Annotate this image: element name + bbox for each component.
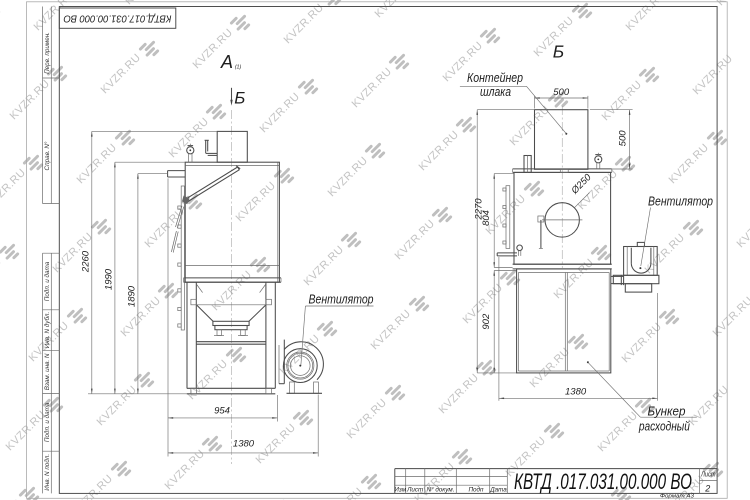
svg-text:902: 902 (481, 313, 492, 330)
svg-text:500: 500 (617, 130, 628, 147)
svg-text:Подп. и дата: Подп. и дата (43, 402, 51, 442)
svg-text:N° докум.: N° докум. (427, 485, 455, 493)
svg-text:Вентилятор: Вентилятор (648, 195, 713, 209)
svg-text:Подп: Подп (468, 485, 484, 493)
svg-text:Б: Б (234, 89, 245, 108)
svg-text:КВТД.017.031.00.000 ВО: КВТД.017.031.00.000 ВО (63, 12, 171, 23)
svg-text:804: 804 (481, 210, 492, 226)
svg-text:1990: 1990 (103, 268, 114, 290)
svg-text:Инв. N дубл.: Инв. N дубл. (43, 312, 51, 348)
svg-text:1380: 1380 (565, 387, 587, 398)
svg-text:Подп. и дата: Подп. и дата (43, 261, 51, 301)
svg-text:А: А (220, 52, 233, 72)
svg-text:расходный: расходный (638, 420, 690, 434)
svg-text:954: 954 (214, 406, 230, 417)
svg-text:1380: 1380 (233, 439, 255, 450)
svg-text:Бункер: Бункер (648, 405, 686, 419)
svg-text:шлака: шлака (480, 85, 511, 99)
svg-text:Инв. N подл.: Инв. N подл. (43, 454, 51, 491)
svg-text:1890: 1890 (126, 285, 137, 307)
svg-text:2260: 2260 (80, 250, 91, 273)
svg-text:500: 500 (553, 87, 570, 98)
svg-text:Формат А3: Формат А3 (660, 493, 695, 499)
svg-text:Лист: Лист (700, 469, 715, 478)
svg-text:Перв. примен.: Перв. примен. (44, 32, 51, 74)
svg-text:Контейнер: Контейнер (467, 71, 523, 85)
svg-text:Дата: Дата (489, 486, 507, 493)
svg-text:Б: Б (553, 42, 564, 62)
svg-text:Вентилятор: Вентилятор (309, 293, 374, 307)
svg-text:(1): (1) (235, 65, 242, 71)
svg-text:Взам. инв. N: Взам. инв. N (44, 353, 51, 390)
svg-text:2: 2 (704, 483, 710, 493)
svg-text:Изм: Изм (394, 486, 406, 493)
svg-text:Справ. N°: Справ. N° (43, 141, 51, 170)
svg-text:КВТД .017.031.00.000 ВО: КВТД .017.031.00.000 ВО (514, 469, 692, 494)
svg-text:Лист: Лист (406, 486, 423, 493)
